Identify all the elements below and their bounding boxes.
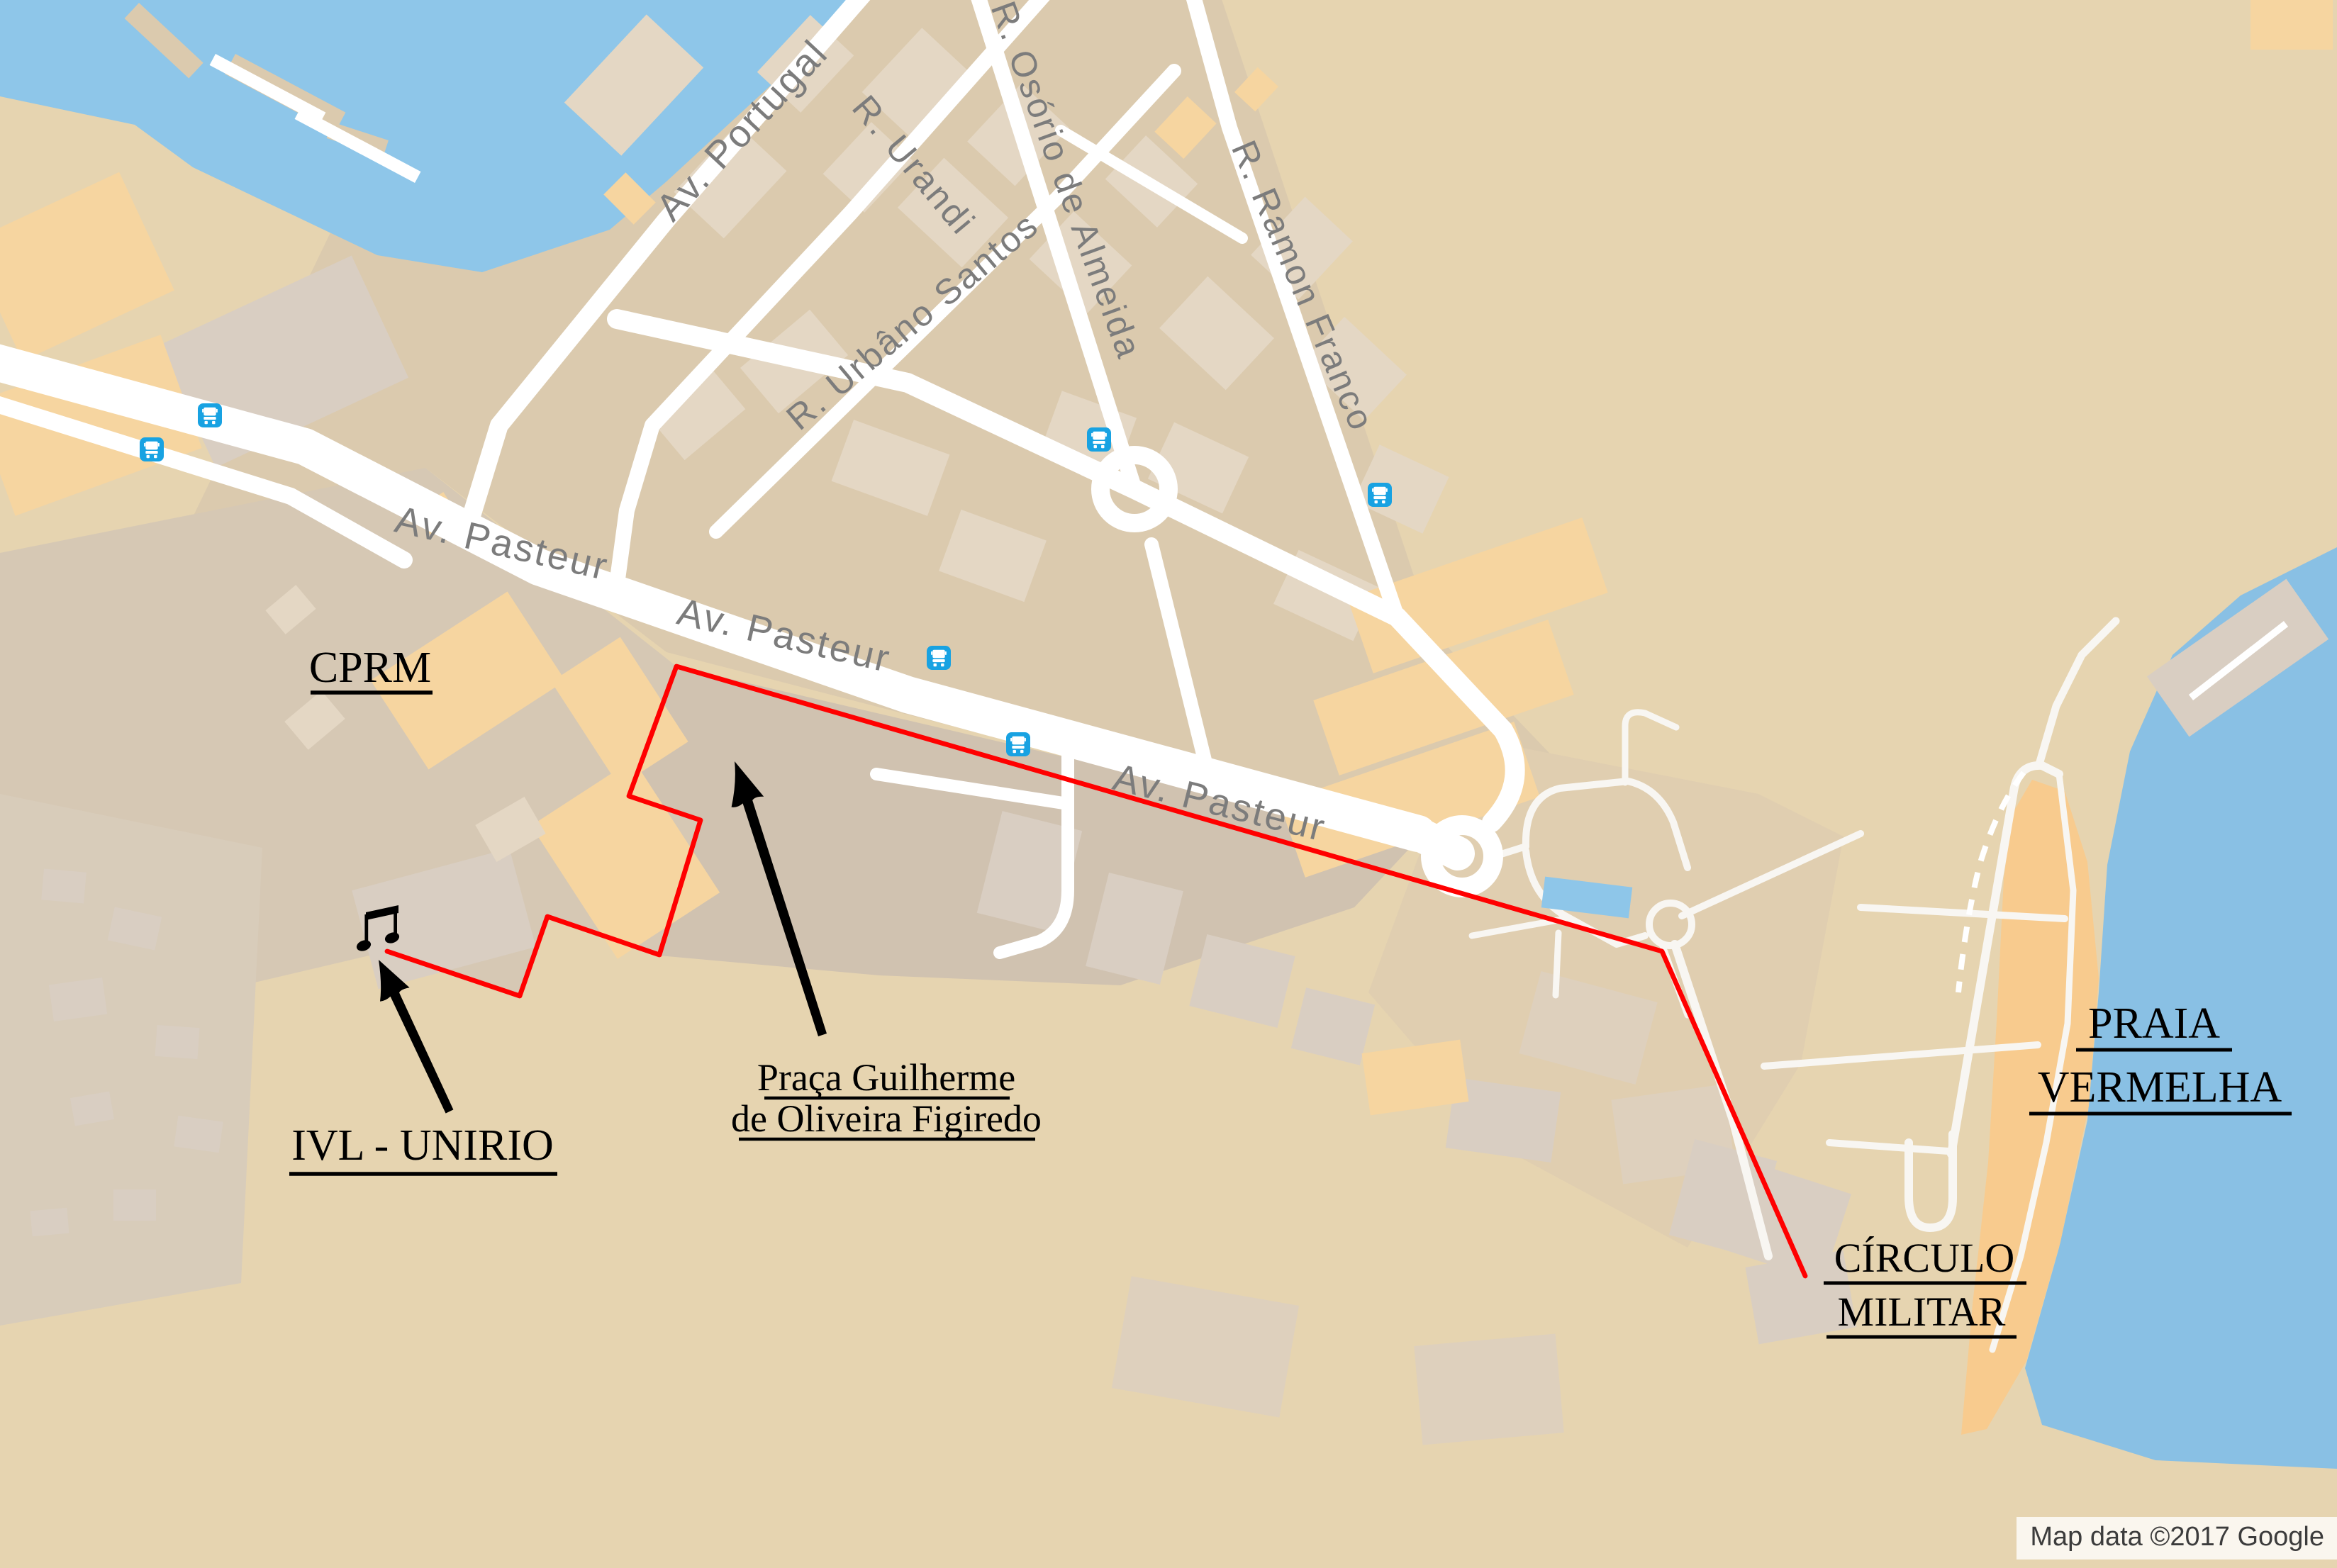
label-praca-line1: Praça Guilherme	[757, 1056, 1015, 1099]
bus-stop-icon	[1006, 732, 1030, 756]
bus-stop-icon	[1087, 427, 1111, 452]
label-praca-line2: de Oliveira Figiredo	[731, 1097, 1042, 1140]
bus-stop-icon	[1368, 483, 1392, 507]
label-cprm: CPRM	[309, 644, 431, 692]
building	[155, 1025, 200, 1059]
building	[1414, 1334, 1563, 1445]
building	[2250, 0, 2333, 50]
map-canvas[interactable]: Av. Portugal R. Urandi R. Osório de Alme…	[0, 0, 2337, 1568]
bus-stop-icon	[140, 437, 164, 461]
bus-stop-icon	[198, 403, 222, 427]
map-graphic: Av. Portugal R. Urandi R. Osório de Alme…	[0, 0, 2337, 1568]
label-circulo-line1: CÍRCULO	[1834, 1235, 2015, 1281]
label-praia-line1: PRAIA	[2088, 999, 2220, 1048]
label-ivl-unirio: IVL - UNIRIO	[291, 1121, 554, 1170]
label-praia-line2: VERMELHA	[2038, 1063, 2282, 1111]
building	[49, 978, 107, 1021]
building	[41, 868, 87, 903]
label-circulo-line2: MILITAR	[1838, 1289, 2006, 1335]
bus-stop-icon	[927, 646, 951, 670]
road	[1556, 933, 1558, 995]
building	[174, 1116, 223, 1153]
building	[30, 1208, 69, 1236]
map-attribution: Map data ©2017 Google	[2016, 1517, 2337, 1559]
building	[113, 1189, 156, 1221]
